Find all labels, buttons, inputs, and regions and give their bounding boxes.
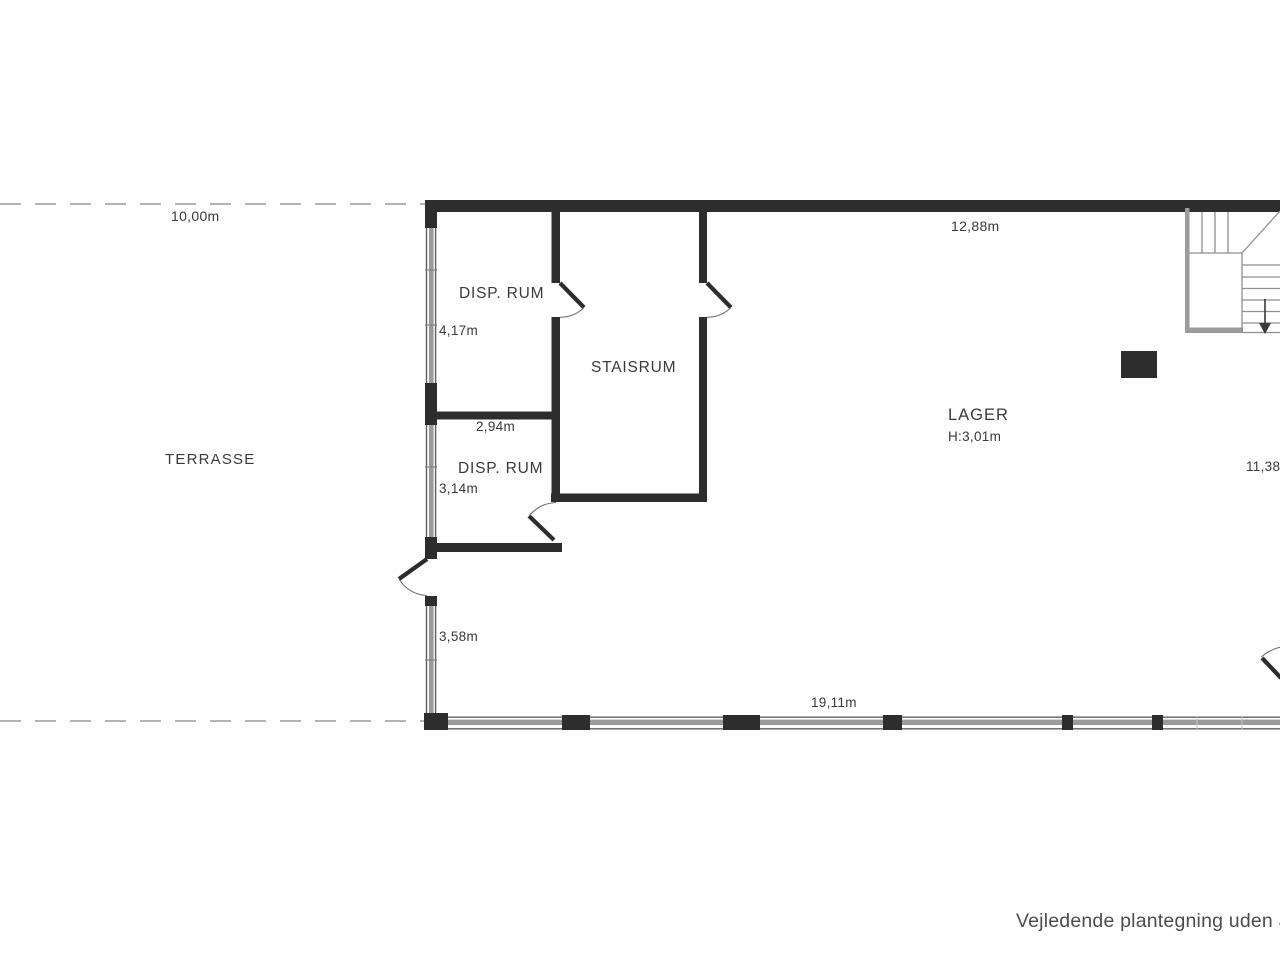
- room-label-disp-rum-1: DISP. RUM: [459, 285, 544, 302]
- dimension-terrace-top-width: 10,00m: [171, 209, 220, 224]
- dimension-lager-right-depth: 11,38m: [1246, 460, 1280, 475]
- floor-plan-drawing: [0, 0, 1280, 960]
- ceiling-height-lager: H:3,01m: [948, 430, 1001, 445]
- room-label-disp-rum-2: DISP. RUM: [458, 460, 543, 477]
- door-swings: [399, 283, 1280, 678]
- disclaimer-text: Vejledende plantegning uden a: [1016, 911, 1280, 932]
- room-label-staisrum: STAISRUM: [591, 359, 676, 376]
- stairs-down-arrow-icon: [1259, 299, 1271, 334]
- dimension-lager-top-width: 12,88m: [951, 219, 1000, 234]
- dimension-bottom-width: 19,11m: [811, 696, 857, 711]
- window-left-wall: [425, 228, 437, 713]
- dimension-disp-rum-2: 3,14m: [439, 482, 478, 497]
- dimension-left-lower-height: 3,58m: [439, 630, 478, 645]
- room-label-lager: LAGER: [948, 406, 1009, 424]
- structural-column: [1121, 351, 1157, 378]
- dimension-disp-rum-1: 4,17m: [439, 324, 478, 339]
- staircase: [1185, 208, 1280, 334]
- room-label-terrasse: TERRASSE: [165, 452, 255, 469]
- floor-plan-canvas: TERRASSE 10,00m DISP. RUM 4,17m 2,94m DI…: [0, 0, 1280, 960]
- stair-treads: [1190, 211, 1280, 333]
- dimension-disp-rum-2-top: 2,94m: [476, 420, 515, 435]
